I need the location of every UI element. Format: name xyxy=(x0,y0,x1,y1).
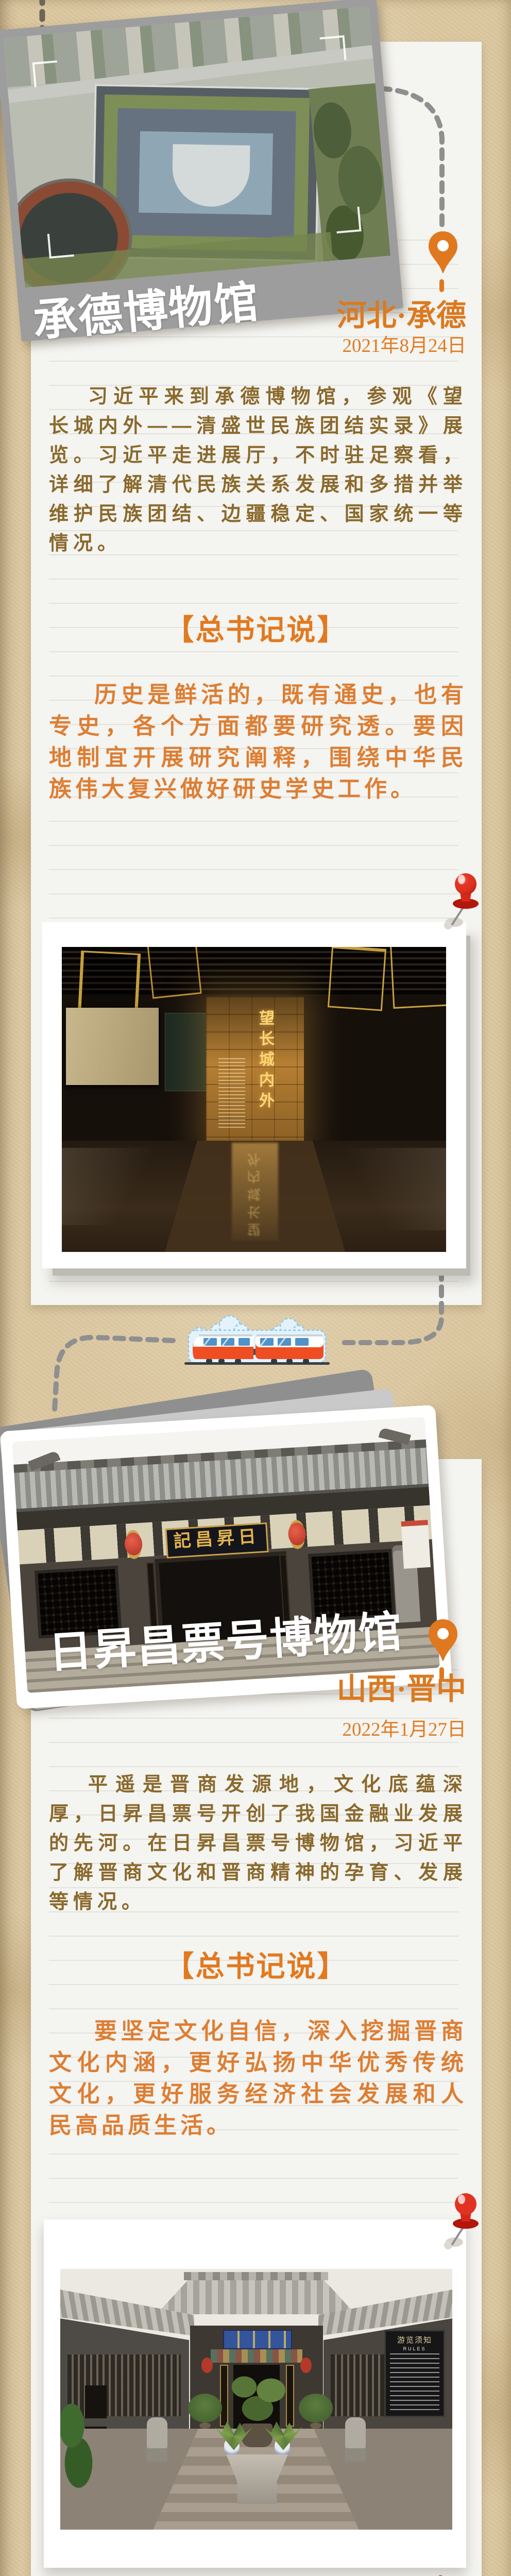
center-roof xyxy=(138,2278,374,2314)
exhibition-hall-photo: 望长城内外 望长城内外 xyxy=(62,947,446,1252)
location-pin-icon xyxy=(427,1618,459,1663)
side-floor-sheen xyxy=(343,1148,446,1230)
exhibit-text-lines xyxy=(218,1058,245,1130)
chengde-aerial-photo xyxy=(3,6,390,287)
section1-quote-header: 【总书记说】 xyxy=(31,607,482,649)
red-lantern-icon xyxy=(201,2358,213,2373)
section2-date: 2022年1月27日 xyxy=(343,1720,467,1739)
left-dark-panel xyxy=(165,1013,212,1091)
center-ridge-crest xyxy=(184,2272,328,2280)
notice-board-subtitle: RULES xyxy=(390,2346,439,2351)
section1-quote: 历史是鲜活的，既有通史，也有专史，各个方面都要研究透。要因地制宜开展研究阐释，围… xyxy=(49,679,467,805)
exhibit-wall-title-reflection: 望长城内外 xyxy=(243,1149,262,1236)
section1-location: 河北·承德 xyxy=(337,301,466,331)
courtyard-photo: 游览须知 RULES xyxy=(60,2269,452,2530)
facade-polaroid: 記昌昇日 日昇昌票号博物馆 xyxy=(0,1405,452,1709)
section2-quote-header: 【总书记说】 xyxy=(31,1943,482,1985)
section2-body: 平遥是晋商发源地，文化底蕴深厚，日昇昌票号开创了我国金融业发展的先河。在日昇昌票… xyxy=(49,1770,467,1917)
chengde-aerial-photo-card: 承德博物馆 xyxy=(0,0,403,342)
section2-quote: 要坚定文化自信，深入挖掘晋商文化内涵，更好弘扬中华优秀传统文化，更好服务经济社会… xyxy=(49,2015,467,2141)
central-pot xyxy=(242,2424,272,2447)
gold-lantern-icon xyxy=(328,947,386,1011)
central-tree xyxy=(224,2370,291,2427)
exhibition-hall-polaroid: 望长城内外 望长城内外 xyxy=(42,922,466,1268)
section1-date: 2021年8月24日 xyxy=(343,336,467,355)
red-lantern-icon xyxy=(300,2358,312,2373)
stone-lion-icon xyxy=(147,2417,167,2462)
red-pushpin-icon xyxy=(437,2192,484,2249)
gold-lantern-icon xyxy=(390,947,446,1009)
pin-tail-dash xyxy=(439,279,444,292)
viewfinder-bracket-icon xyxy=(320,35,347,62)
left-exhibit-panel xyxy=(66,1008,159,1085)
train-icon xyxy=(178,1315,335,1368)
foreground-plant xyxy=(60,2398,99,2490)
potted-shrub xyxy=(188,2394,222,2422)
red-pushpin-icon xyxy=(437,872,484,929)
section2-location: 山西·晋中 xyxy=(337,1674,466,1704)
exhibit-wall-title: 望长城内外 xyxy=(253,1010,276,1113)
bronze-feature-wall: 望长城内外 xyxy=(206,996,304,1146)
poster-canvas: 承德博物馆 河北·承德 2021年8月24日 习近平来到承德博物馆，参观《望长城… xyxy=(0,0,511,2576)
section1-body: 习近平来到承德博物馆，参观《望长城内外——清盛世民族团结实录》展览。习近平走进展… xyxy=(49,382,467,558)
gold-lantern-icon xyxy=(146,947,202,999)
plaque-text: 記昌昇日 xyxy=(173,1527,261,1551)
far-hall-carving xyxy=(211,2349,302,2363)
viewfinder-bracket-icon xyxy=(32,60,59,87)
viewfinder-bracket-icon xyxy=(47,232,74,259)
right-lattice-band xyxy=(331,2354,393,2416)
courtyard-polaroid: 游览须知 RULES xyxy=(44,2219,466,2568)
wall-poster xyxy=(401,1520,431,1569)
stone-lion-icon xyxy=(345,2417,366,2462)
location-pin-icon xyxy=(427,230,459,275)
potted-shrub xyxy=(299,2394,333,2422)
side-floor-sheen xyxy=(62,1148,155,1225)
notice-board-lines xyxy=(390,2353,439,2410)
notice-board: 游览须知 RULES xyxy=(384,2330,445,2417)
notice-board-title: 游览须知 xyxy=(390,2334,439,2345)
far-hall-plaque xyxy=(223,2330,292,2349)
viewfinder-bracket-icon xyxy=(335,207,362,233)
shop-plaque: 記昌昇日 xyxy=(165,1522,268,1558)
